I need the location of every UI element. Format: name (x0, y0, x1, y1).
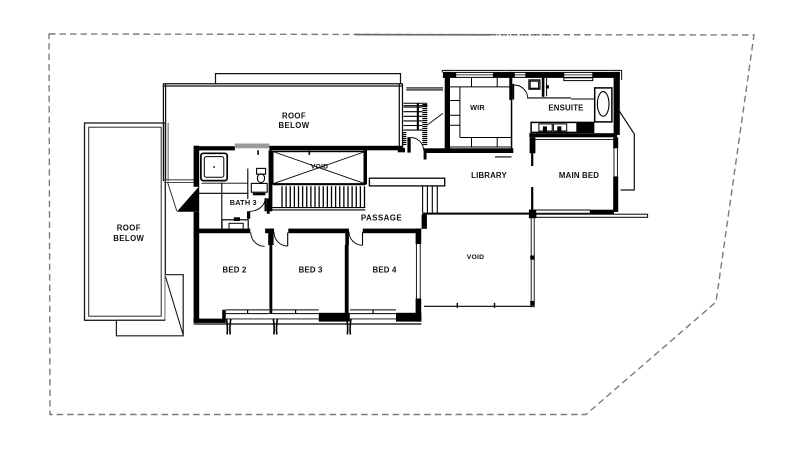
svg-text:BELOW: BELOW (278, 121, 309, 130)
svg-text:LIBRARY: LIBRARY (471, 171, 507, 180)
svg-text:VOID: VOID (311, 163, 328, 170)
svg-text:BATH 3: BATH 3 (230, 198, 257, 207)
svg-text:PASSAGE: PASSAGE (361, 213, 403, 222)
svg-text:WIR: WIR (470, 103, 485, 112)
svg-text:BED 4: BED 4 (373, 265, 397, 274)
svg-text:BED 3: BED 3 (299, 265, 323, 274)
svg-text:ROOF: ROOF (117, 224, 141, 233)
svg-text:MAIN BED: MAIN BED (559, 171, 599, 180)
svg-text:ROOF: ROOF (282, 111, 306, 120)
svg-text:BELOW: BELOW (113, 234, 144, 243)
svg-text:VOID: VOID (467, 254, 484, 261)
svg-text:BED 2: BED 2 (223, 265, 247, 274)
svg-text:ENSUITE: ENSUITE (548, 103, 583, 112)
